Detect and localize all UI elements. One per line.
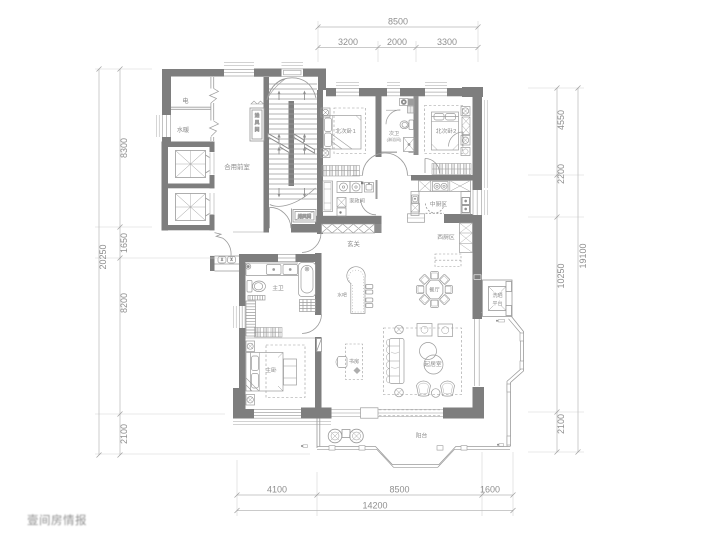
svg-text:中厨区: 中厨区 [430, 200, 448, 208]
svg-text:次卫: 次卫 [389, 130, 399, 137]
svg-text:4550: 4550 [556, 110, 566, 130]
svg-text:2100: 2100 [119, 424, 129, 444]
svg-text:2000: 2000 [387, 37, 407, 47]
svg-text:2100: 2100 [556, 414, 566, 434]
svg-text:3200: 3200 [338, 37, 358, 47]
svg-text:水暖: 水暖 [177, 126, 189, 134]
svg-text:北次卧2: 北次卧2 [436, 127, 457, 135]
svg-text:8500: 8500 [389, 485, 409, 495]
svg-text:2200: 2200 [556, 164, 566, 184]
svg-text:8200: 8200 [119, 293, 129, 313]
svg-text:19100: 19100 [578, 243, 588, 268]
svg-text:书房: 书房 [349, 357, 359, 365]
svg-text:10250: 10250 [556, 263, 566, 288]
svg-text:水吧: 水吧 [337, 292, 347, 299]
svg-text:8300: 8300 [119, 138, 129, 158]
svg-text:家政间: 家政间 [349, 197, 365, 205]
svg-text:合用前室: 合用前室 [224, 162, 250, 171]
svg-text:(淋浴间): (淋浴间) [387, 136, 402, 142]
svg-text:1600: 1600 [480, 485, 500, 495]
svg-text:餐厅: 餐厅 [429, 286, 439, 294]
svg-text:进: 进 [255, 112, 260, 119]
svg-text:阳台: 阳台 [416, 432, 428, 440]
svg-text:玄关: 玄关 [347, 239, 360, 248]
svg-text:排风间: 排风间 [298, 213, 311, 220]
svg-text:1650: 1650 [119, 233, 129, 253]
svg-text:平台: 平台 [492, 300, 502, 307]
svg-text:起居室: 起居室 [424, 360, 442, 368]
svg-text:北次卧1: 北次卧1 [335, 127, 356, 135]
svg-text:4100: 4100 [267, 485, 287, 495]
svg-text:电: 电 [182, 97, 188, 105]
svg-text:3300: 3300 [437, 37, 457, 47]
svg-text:主卧: 主卧 [265, 366, 277, 374]
svg-text:洗晒: 洗晒 [492, 292, 502, 299]
svg-text:14200: 14200 [362, 501, 387, 511]
svg-text:间: 间 [255, 126, 260, 133]
svg-text:20250: 20250 [98, 244, 108, 269]
svg-text:壹间房情报: 壹间房情报 [27, 513, 87, 527]
svg-text:西厨区: 西厨区 [437, 234, 455, 241]
svg-text:主卫: 主卫 [272, 284, 284, 292]
svg-text:8500: 8500 [388, 17, 408, 27]
